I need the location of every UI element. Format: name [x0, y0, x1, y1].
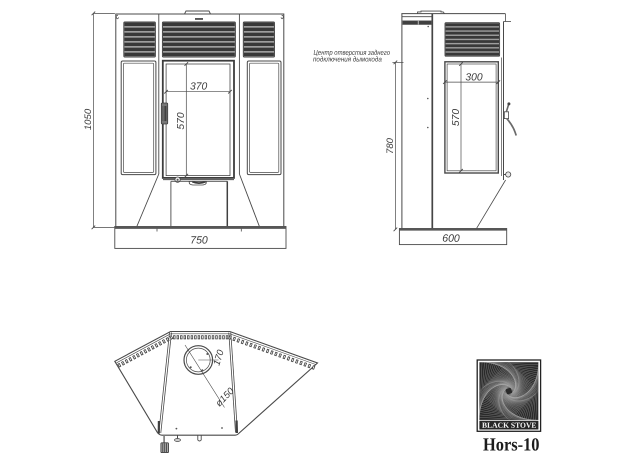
svg-text:600: 600 [442, 233, 460, 245]
svg-text:570: 570 [176, 112, 187, 129]
svg-text:подключения дымохода: подключения дымохода [313, 56, 382, 64]
svg-text:1050: 1050 [83, 108, 94, 130]
svg-text:Hors-10: Hors-10 [483, 436, 540, 456]
svg-text:750: 750 [190, 234, 208, 246]
svg-text:BLACK STOVE: BLACK STOVE [482, 421, 537, 430]
svg-text:370: 370 [190, 81, 207, 92]
svg-text:780: 780 [385, 137, 396, 154]
svg-text:570: 570 [451, 109, 462, 126]
svg-text:300: 300 [465, 72, 482, 83]
